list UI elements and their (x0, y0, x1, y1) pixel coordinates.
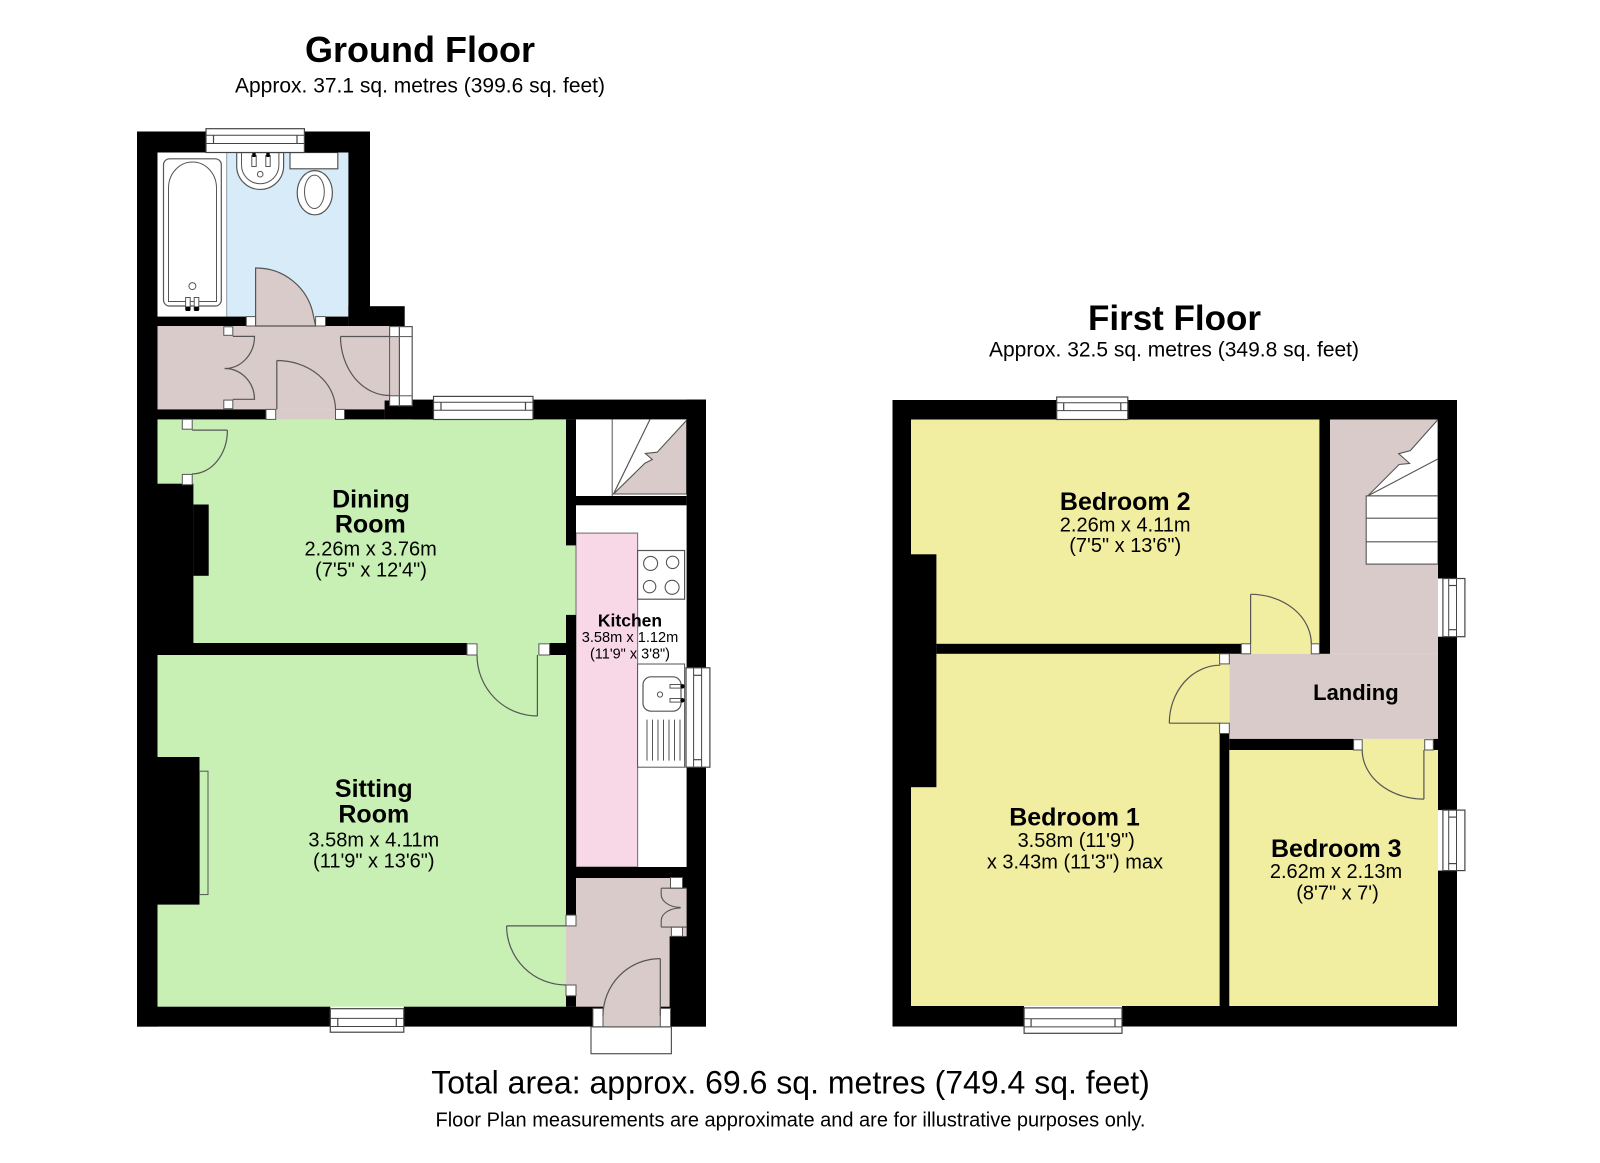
svg-text:Landing: Landing (1313, 680, 1399, 705)
svg-text:Room: Room (338, 801, 409, 829)
svg-text:Sitting: Sitting (335, 775, 413, 803)
svg-text:First Floor: First Floor (1088, 299, 1261, 338)
svg-text:(11'9" x 3'8"): (11'9" x 3'8") (590, 646, 670, 662)
svg-text:Total area: approx. 69.6 sq. m: Total area: approx. 69.6 sq. metres (749… (431, 1065, 1150, 1101)
svg-text:Approx. 37.1 sq. metres (399.6: Approx. 37.1 sq. metres (399.6 sq. feet) (235, 75, 605, 98)
svg-text:(8'7" x 7'): (8'7" x 7') (1296, 882, 1379, 904)
svg-text:3.58m x 4.11m: 3.58m x 4.11m (308, 829, 439, 851)
svg-text:x 3.43m (11'3") max: x 3.43m (11'3") max (987, 852, 1163, 874)
svg-text:2.26m x 4.11m: 2.26m x 4.11m (1060, 515, 1191, 537)
svg-text:Bedroom 3: Bedroom 3 (1271, 835, 1402, 863)
svg-text:Approx. 32.5 sq. metres (349.8: Approx. 32.5 sq. metres (349.8 sq. feet) (989, 338, 1359, 361)
svg-text:Bedroom 1: Bedroom 1 (1009, 804, 1140, 832)
svg-text:(7'5" x 12'4"): (7'5" x 12'4") (315, 560, 427, 582)
svg-text:Bedroom 2: Bedroom 2 (1060, 488, 1191, 516)
svg-text:(11'9" x 13'6"): (11'9" x 13'6") (313, 851, 435, 873)
svg-text:Floor Plan measurements are ap: Floor Plan measurements are approximate … (436, 1110, 1146, 1132)
svg-text:(7'5" x 13'6"): (7'5" x 13'6") (1069, 535, 1181, 557)
svg-text:Ground Floor: Ground Floor (305, 29, 535, 70)
svg-text:2.26m x 3.76m: 2.26m x 3.76m (305, 539, 437, 561)
svg-text:Dining: Dining (332, 486, 410, 514)
svg-text:3.58m (11'9"): 3.58m (11'9") (1018, 830, 1135, 852)
svg-text:2.62m x 2.13m: 2.62m x 2.13m (1270, 861, 1402, 883)
svg-text:Kitchen: Kitchen (598, 611, 662, 631)
svg-text:3.58m x 1.12m: 3.58m x 1.12m (582, 630, 679, 646)
svg-text:Room: Room (335, 511, 406, 539)
